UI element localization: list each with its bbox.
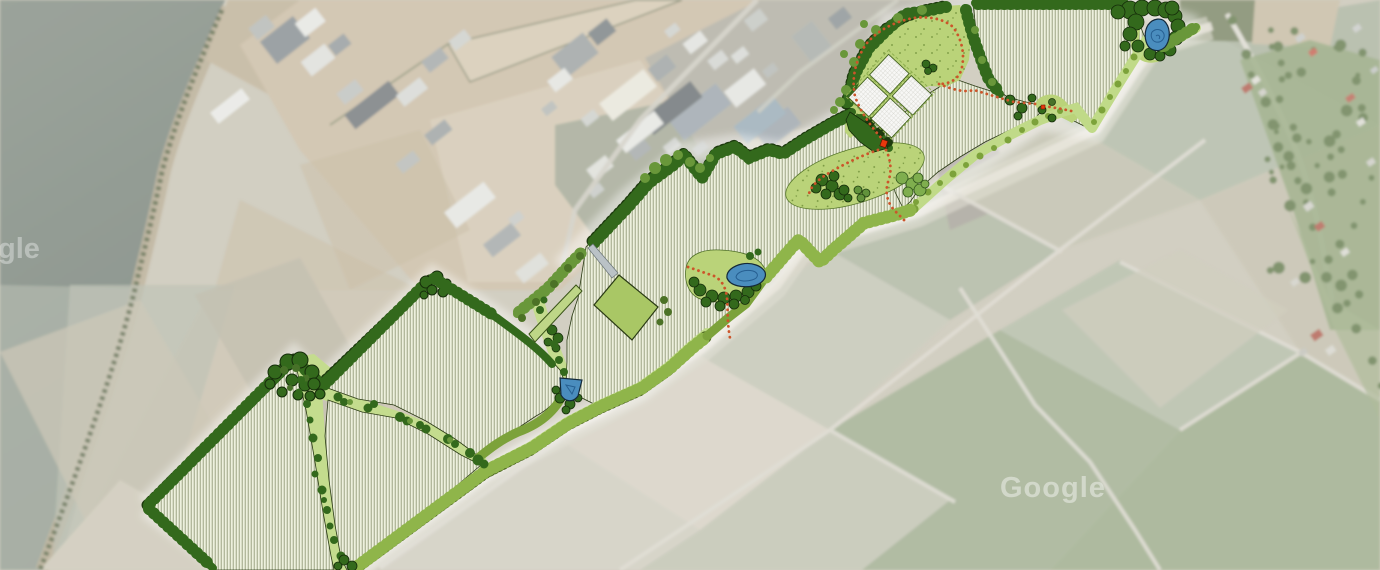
- svg-text:Google: Google: [0, 233, 40, 265]
- svg-text:Google: Google: [1000, 472, 1106, 504]
